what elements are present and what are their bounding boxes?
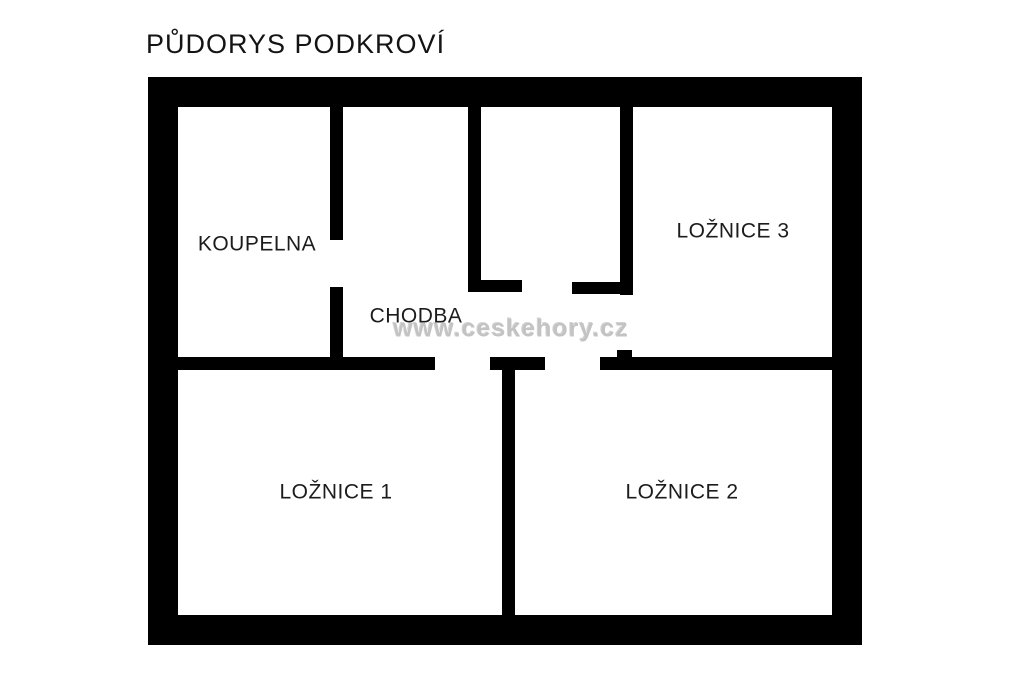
wall-hall-south-wall-left [148,357,435,370]
room-label-loznice-3: LOŽNICE 3 [676,221,789,242]
wall-hall-south-wall-right [600,357,832,370]
wall-bedroom-divider [502,370,515,615]
watermark: www.ceskehory.cz [393,317,629,342]
wall-closet-left-wall [468,107,481,292]
wall-closet-right-wall [620,107,633,295]
floor-plan-canvas: PŮDORYS PODKROVÍ KOUPELNACHODBALOŽNICE 3… [0,0,1024,683]
wall-outer-top [148,77,862,107]
wall-outer-bottom [148,615,862,645]
room-label-loznice-1: LOŽNICE 1 [279,482,392,503]
wall-closet-right-foot [572,282,620,294]
room-label-koupelna: KOUPELNA [198,234,316,255]
wall-closet-left-foot [468,280,522,292]
wall-bedroom-divider-head [490,357,545,370]
room-label-loznice-2: LOŽNICE 2 [625,482,738,503]
wall-bathroom-wall-upper [330,107,343,240]
page-title: PŮDORYS PODKROVÍ [146,31,445,58]
wall-outer-right [832,77,862,645]
